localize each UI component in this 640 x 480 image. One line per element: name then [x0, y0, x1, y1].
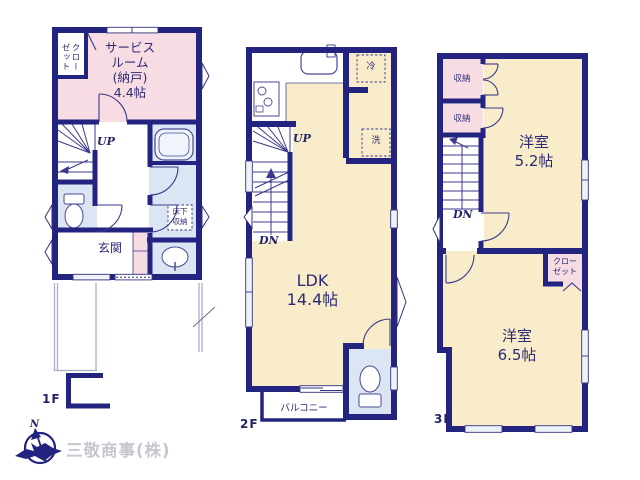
western-room-52-label: 洋室 5.2帖 — [495, 133, 573, 171]
stairs-up-1f-label: UP — [97, 134, 115, 149]
storage-bottom-label: 収納 — [447, 114, 477, 124]
stove-icon — [254, 82, 279, 116]
stairs-up-2f-label: UP — [293, 131, 311, 146]
storage-top-label: 収納 — [447, 74, 477, 84]
floorplan-page: クロー ゼット サービス ルーム (納戸) 4.4帖 UP 玄関 床下 収納 1… — [0, 0, 640, 480]
approach-lines — [54, 283, 202, 371]
bathtub-icon — [155, 129, 193, 160]
closet-1f-label: クロー ゼット — [60, 37, 80, 77]
closet-3f-label: クロー ゼット — [547, 257, 583, 277]
ldk-label: LDK 14.4帖 — [270, 271, 355, 309]
compass-north-label: N — [30, 417, 39, 432]
compass-icon — [15, 428, 62, 463]
service-room-label: サービス ルーム (納戸) 4.4帖 — [90, 40, 170, 100]
stairs-down-3f-label: DN — [453, 207, 473, 222]
balcony-label: バルコニー — [274, 401, 334, 416]
toilet-2f-icon — [359, 366, 381, 407]
stairs-down-2f-label: DN — [259, 233, 279, 248]
floor-label-3f: 3F — [434, 412, 453, 427]
floor-label-2f: 2F — [240, 417, 259, 432]
refrigerator-label: 冷 — [357, 62, 385, 72]
western-room-65-label: 洋室 6.5帖 — [478, 327, 556, 365]
entrance-label: 玄関 — [80, 241, 140, 256]
underfloor-storage-label: 床下 収納 — [166, 207, 194, 227]
floor-3f-plan — [433, 56, 588, 432]
company-name: 三敬商事(株) — [66, 443, 171, 458]
washer-label: 洗 — [362, 136, 390, 146]
entrance-steps — [69, 376, 111, 407]
toilet-icon — [64, 194, 84, 228]
floor-label-1f: 1F — [42, 392, 61, 407]
